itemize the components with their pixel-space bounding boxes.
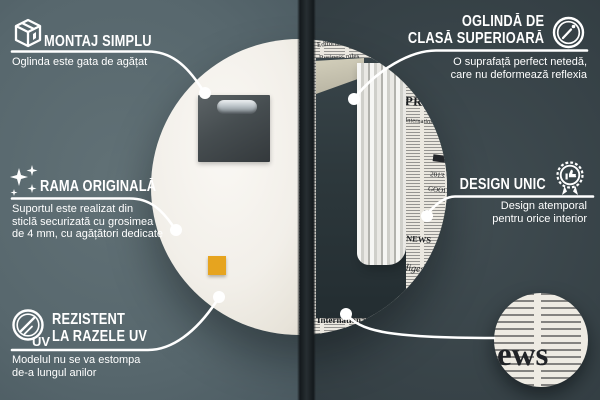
pattern-zoom-text: ews: [497, 337, 548, 374]
label-sticker: [208, 256, 226, 275]
sparkles-icon: [8, 164, 42, 198]
newsprint-photo-block: [433, 154, 447, 163]
newsprint-headline: PRESS: [405, 95, 447, 110]
newsprint-headline: NEWS: [406, 234, 432, 244]
design-subtitle: Design atemporal pentru orice interior: [492, 200, 587, 225]
montaj-subtitle: Oglinda este gata de agățat: [12, 56, 147, 69]
clasa-title: OGLINDĂ DE CLASĂ SUPERIOARĂ: [380, 13, 544, 47]
split-divider: [297, 0, 316, 400]
mirror-shine-icon: [550, 14, 587, 51]
montaj-title: MONTAJ SIMPLU: [44, 33, 152, 50]
reflected-curtain: [357, 63, 406, 265]
uv-subtitle: Modelul nu se va estompa de-a lungul ani…: [12, 354, 140, 379]
mirror-reflection: [316, 58, 406, 318]
product-infographic: Editorial analysis Business Business rul…: [0, 0, 600, 400]
uv-resistant-icon: UV: [8, 305, 52, 351]
rama-subtitle: Suportul este realizat din sticlă securi…: [12, 203, 163, 241]
package-box-icon: [10, 14, 46, 50]
award-thumbs-up-icon: [551, 160, 589, 198]
clasa-subtitle: O suprafață perfect netedă, care nu defo…: [451, 56, 587, 81]
design-title: DESIGN UNIC: [460, 176, 546, 193]
newsprint-photo-block: [351, 39, 367, 46]
uv-icon-label: UV: [32, 334, 50, 349]
hanger-bracket: [217, 100, 257, 114]
rama-title: RAMA ORIGINALĂ: [40, 178, 156, 195]
pattern-zoom-circle: ews: [494, 293, 588, 387]
uv-title: REZISTENT LA RAZELE UV: [52, 311, 167, 345]
mirror-back-side: [151, 39, 299, 335]
